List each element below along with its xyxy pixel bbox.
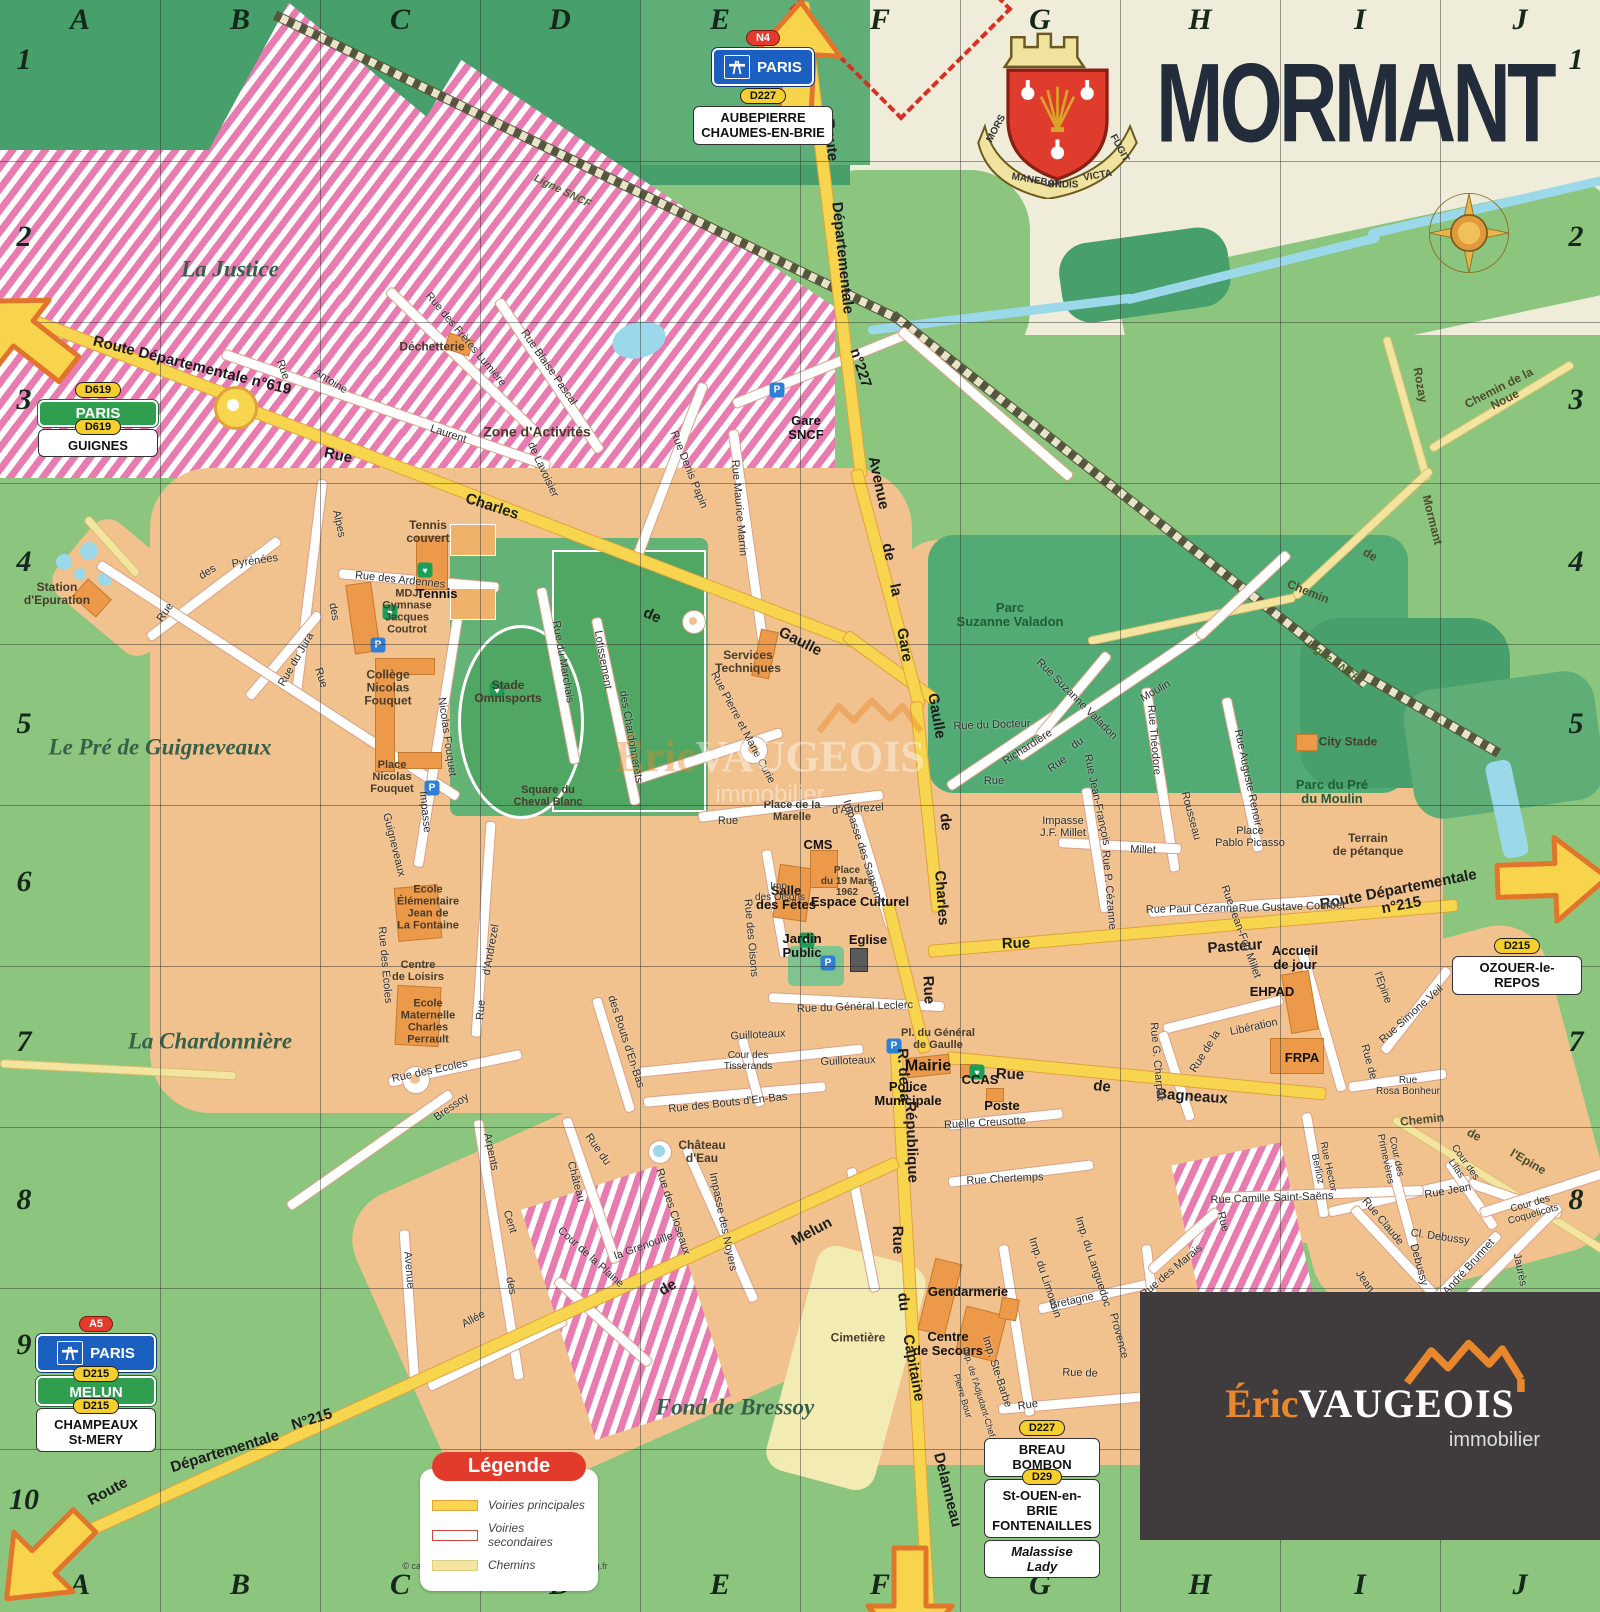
grid-number: 3 <box>1569 383 1584 417</box>
map-label: Poste <box>984 1099 1019 1113</box>
map-label: Millet <box>1130 845 1156 858</box>
roundabout <box>227 399 239 411</box>
map-label: Services Techniques <box>715 649 781 675</box>
legend-label: Voiries principales <box>488 1498 585 1512</box>
grid-line <box>480 0 481 1612</box>
road-badge: N4 <box>746 30 780 46</box>
grid-line <box>960 0 961 1612</box>
road-badge: D215 <box>73 1398 119 1414</box>
logo-tagline: immobilier <box>1449 1429 1540 1452</box>
map-label: Parc du Pré du Moulin <box>1296 778 1368 806</box>
map-label: Imp. des Oisons <box>755 882 805 904</box>
legend: Légende Voiries principales Voiries seco… <box>420 1452 598 1591</box>
grid-letter: B <box>230 3 250 37</box>
road-badge: D619 <box>75 419 121 435</box>
road-badge: D619 <box>75 382 121 398</box>
grid-line <box>0 1127 1600 1128</box>
destination-panel: CHAMPEAUX St-MERY <box>36 1408 156 1452</box>
roof-icon <box>1399 1336 1529 1392</box>
svg-text:MORS: MORS <box>984 113 1008 145</box>
map-label: Rue <box>984 776 1004 788</box>
grid-number: 8 <box>1569 1183 1584 1217</box>
grid-number: 6 <box>17 865 32 899</box>
map-label: République <box>901 1101 920 1183</box>
grid-letter: I <box>1354 1568 1366 1602</box>
main-road-swatch <box>432 1500 478 1511</box>
map-title: MORMANT <box>1156 38 1524 169</box>
path-swatch <box>432 1560 478 1571</box>
grid-letter: F <box>870 3 890 37</box>
road-badge: D215 <box>1494 938 1540 954</box>
grid-letter: H <box>1188 3 1211 37</box>
parking-icon: P <box>770 383 785 398</box>
grid-number: 1 <box>17 43 32 77</box>
map-label: Rozay <box>1411 366 1430 403</box>
map-label: Chemin de la Noue <box>1452 360 1551 428</box>
grid-number: 9 <box>17 1328 32 1362</box>
map-label: du <box>894 1292 912 1312</box>
parking-icon: P <box>371 638 386 653</box>
map-label: Espace Culturel <box>811 895 909 909</box>
logo-prefix: Éric <box>1225 1380 1298 1427</box>
road-badge: D215 <box>73 1366 119 1382</box>
map-label: de <box>1092 1078 1111 1096</box>
map-label: des <box>326 602 341 622</box>
water-area <box>74 568 86 580</box>
secondary-road-swatch <box>432 1530 478 1541</box>
map-label: Rue <box>718 816 738 828</box>
map-label: Collège Nicolas Fouquet <box>364 669 411 708</box>
map-label: Avenue <box>400 1251 415 1289</box>
map-label: Ecole Élémentaire Jean de La Fontaine <box>397 884 459 932</box>
legend-title: Légende <box>432 1452 586 1481</box>
map-label: la <box>886 582 904 598</box>
map-label: Accueil de jour <box>1272 944 1318 972</box>
map-label: Cimetière <box>831 1332 886 1345</box>
exit-arrow-south <box>864 1545 956 1612</box>
road-badge: D227 <box>740 88 786 104</box>
map-label: Rue <box>919 975 937 1004</box>
grid-number: 4 <box>1569 545 1584 579</box>
grid-number: 2 <box>1569 220 1584 254</box>
grid-letter: C <box>390 3 410 37</box>
grid-line <box>320 0 321 1612</box>
map-label: Gare SNCF <box>788 414 823 442</box>
exit-arrow-east <box>1493 832 1600 928</box>
map-label: des <box>502 1276 517 1296</box>
map-label: Rue <box>1002 935 1031 952</box>
map-label: EHPAD <box>1250 985 1295 999</box>
exit-signs-south: D227 BREAU BOMBON D29 St-OUEN-en-BRIE FO… <box>984 1420 1100 1578</box>
map-label: Rue de <box>1062 1367 1098 1380</box>
parking-icon: P <box>821 956 836 971</box>
destination-panel: Malassise Lady <box>984 1540 1100 1579</box>
legend-item-paths: Chemins <box>432 1558 586 1572</box>
roof-icon <box>810 697 930 737</box>
grid-number: 1 <box>1569 43 1584 77</box>
grid-number: 7 <box>1569 1025 1584 1059</box>
map-label: Guilloteaux <box>820 1055 875 1069</box>
grid-line <box>0 1288 1600 1289</box>
map-label: Pl. du Général de Gaulle <box>901 1028 975 1052</box>
map-label: Place Pablo Picasso <box>1215 826 1285 850</box>
map-label: FRPA <box>1285 1051 1319 1065</box>
map-label: Station d'Epuration <box>24 581 90 607</box>
map-label: Jardin Public <box>782 932 821 960</box>
grid-line <box>160 0 161 1612</box>
destination-panel: AUBEPIERRE CHAUMES-EN-BRIE <box>693 106 833 145</box>
road-badge: A5 <box>79 1316 113 1332</box>
exit-signs-west: D619 PARIS D619 GUIGNES <box>38 382 158 457</box>
map-label: Place Nicolas Fouquet <box>370 760 413 796</box>
compass-rose-icon <box>1426 190 1512 276</box>
roundabout <box>653 1145 665 1157</box>
map-label: de <box>936 812 954 831</box>
map-label: Route <box>85 1475 130 1509</box>
water-area <box>56 554 72 570</box>
building <box>998 1297 1020 1322</box>
grid-number: 5 <box>17 707 32 741</box>
legend-item-main-roads: Voiries principales <box>432 1498 586 1512</box>
legend-label: Voiries secondaires <box>488 1521 586 1549</box>
motorway-icon <box>724 55 750 79</box>
town-map: PPPPP♥♥♥♥♥ MORMANT MORS MANEBAT UNDIS VI… <box>0 0 1600 1612</box>
grid-number: 4 <box>17 545 32 579</box>
map-label: Château d'Eau <box>678 1139 725 1165</box>
grid-line <box>0 966 1600 967</box>
map-label: Rue <box>889 1226 906 1255</box>
map-label: Fond de Bressoy <box>656 1396 814 1421</box>
map-label: Rue Paul Cézanne <box>1146 903 1239 916</box>
map-label: Zone d'Activités <box>483 424 591 439</box>
grid-letter: H <box>1188 1568 1211 1602</box>
grid-number: 7 <box>17 1025 32 1059</box>
map-label: Tennis couvert <box>406 519 449 545</box>
map-label: Rue <box>996 1066 1025 1083</box>
destination-panel: OZOUER-le-REPOS <box>1452 956 1582 995</box>
building <box>1296 734 1318 751</box>
map-label: Rue <box>475 999 489 1020</box>
legend-item-secondary-roads: Voiries secondaires <box>432 1521 586 1549</box>
exit-signs-north: N4 PARIS D227 AUBEPIERRE CHAUMES-EN-BRIE <box>688 30 838 145</box>
roundabout <box>689 617 697 625</box>
grid-letter: C <box>390 1568 410 1602</box>
map-label: CMS <box>804 838 833 852</box>
watermark-name: VAUGEOIS <box>696 732 925 781</box>
tennis-court <box>450 524 496 556</box>
motorway-icon <box>57 1341 83 1365</box>
grid-number: 8 <box>17 1183 32 1217</box>
road-badge: D227 <box>1019 1420 1065 1436</box>
grid-letter: J <box>1513 1568 1528 1602</box>
grid-letter: D <box>549 3 571 37</box>
grid-letter: E <box>710 1568 730 1602</box>
svg-text:VICTA: VICTA <box>1083 168 1113 184</box>
destination-label: PARIS <box>90 1345 135 1362</box>
map-label: La Justice <box>181 258 279 283</box>
grid-line <box>1120 0 1121 1612</box>
watermark: ÉricVAUGEOIS immobilier <box>600 735 940 809</box>
grid-letter: J <box>1513 3 1528 37</box>
svg-text:UNDIS: UNDIS <box>1048 179 1079 190</box>
exit-signs-east: D215 OZOUER-le-REPOS <box>1452 938 1582 995</box>
grid-number: 2 <box>17 220 32 254</box>
destination-panel: St-OUEN-en-BRIE FONTENAILLES <box>984 1479 1100 1538</box>
watermark-prefix: Éric <box>615 732 696 781</box>
map-label: R. de la <box>894 1048 913 1102</box>
church-building <box>850 948 868 972</box>
map-label: Centre de Loisirs <box>392 960 444 984</box>
map-label: de <box>878 542 897 562</box>
map-label: CCAS <box>962 1073 999 1087</box>
grid-letter: A <box>70 3 90 37</box>
road-badge: D29 <box>1022 1469 1062 1485</box>
agency-logo: ÉricVAUGEOIS immobilier <box>1140 1292 1600 1540</box>
map-label: Eglise <box>849 933 887 947</box>
watermark-tagline: immobilier <box>600 781 940 809</box>
path-road <box>1382 335 1432 482</box>
exit-signs-southwest: A5 PARIS D215 MELUN D215 CHAMPEAUX St-ME… <box>36 1316 156 1452</box>
map-label: Cour des Tisserands <box>724 1051 773 1073</box>
map-label: Impasse J.F. Millet <box>1040 816 1086 840</box>
motorway-panel: PARIS <box>712 48 814 86</box>
map-label: Rue Rosa Bonheur <box>1376 1076 1440 1098</box>
grid-letter: I <box>1354 3 1366 37</box>
map-label: Charles <box>931 870 951 926</box>
map-label: Parc Suzanne Valadon <box>957 601 1064 629</box>
map-label: Ecole Maternelle Charles Perrault <box>401 998 455 1046</box>
map-label: Déchetterie <box>399 341 464 354</box>
destination-label: PARIS <box>757 59 802 76</box>
water-area <box>80 542 98 560</box>
legend-label: Chemins <box>488 1558 535 1572</box>
grid-letter: B <box>230 1568 250 1602</box>
map-label: Stade Omnisports <box>474 679 541 705</box>
map-label: Terrain de pétanque <box>1333 832 1404 858</box>
coat-of-arms: MORS MANEBAT UNDIS VICTA FUGIT <box>975 14 1140 199</box>
map-label: City Stade <box>1319 736 1378 749</box>
grid-number: 5 <box>1569 707 1584 741</box>
map-label: La Chardonnière <box>128 1030 292 1055</box>
